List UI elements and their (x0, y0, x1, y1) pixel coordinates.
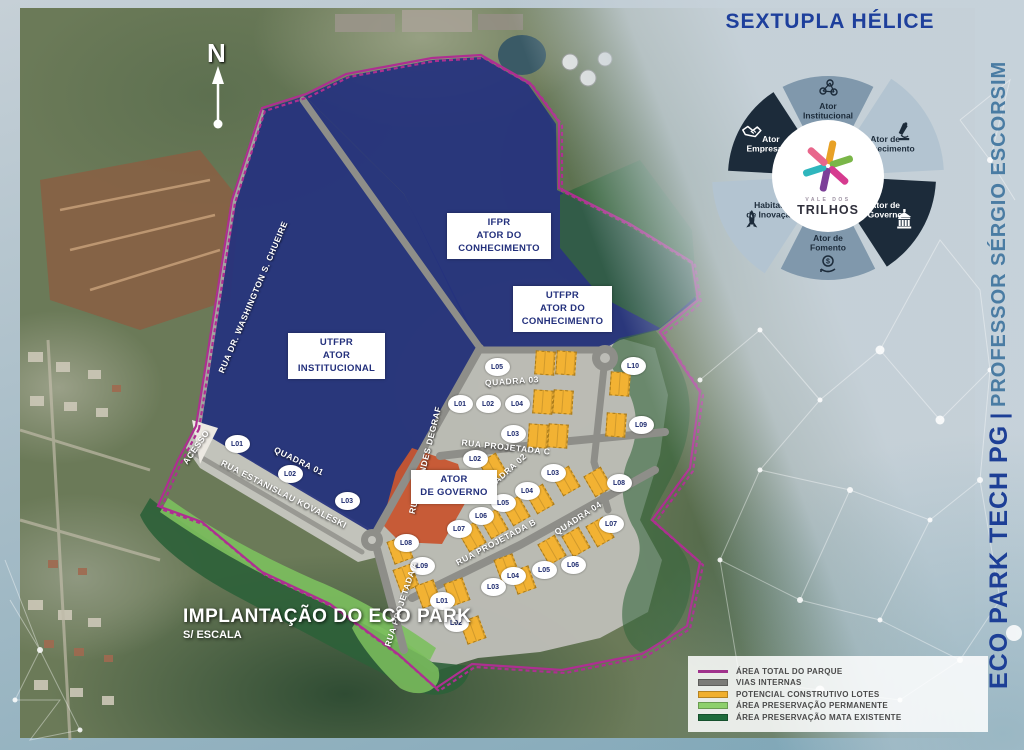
lot-badge: L03 (335, 492, 360, 510)
legend-item: ÁREA PRESERVAÇÃO MATA EXISTENTE (698, 713, 978, 722)
legend-item: POTENCIAL CONSTRUTIVO LOTES (698, 690, 978, 699)
legend-item: ÁREA PRESERVAÇÃO PERMANENTE (698, 701, 978, 710)
area-label-line: DE GOVERNO (417, 487, 491, 500)
magenta-line (698, 670, 728, 673)
area-label-line: UTFPR (519, 290, 606, 303)
lot-badge: L08 (394, 534, 419, 552)
legend-label: ÁREA TOTAL DO PARQUE (736, 667, 842, 676)
map-scale-note: S/ ESCALA (183, 629, 471, 641)
area-label-line: ATOR DO (519, 303, 606, 316)
lot-badge: L09 (629, 416, 654, 434)
helix-diagram: SEXTUPLA HÉLICE AtorInstitucionalAtor de… (690, 10, 970, 314)
vale-dos-trilhos-logo: VALE DOSTRILHOS (772, 120, 884, 232)
helix-title: SEXTUPLA HÉLICE (690, 10, 970, 34)
area-label-line: IFPR (453, 217, 545, 230)
construction-lot (555, 350, 577, 375)
lot-badge: L10 (621, 357, 646, 375)
slide-page: N L01L02L03L05L10L01L02L04L03L09L02L03L0… (0, 0, 1024, 750)
lot-badge: L02 (463, 450, 488, 468)
lot-badge: L04 (505, 395, 530, 413)
side-title-secondary: PROFESSOR SÉRGIO ESCORSIM (988, 61, 1011, 407)
construction-lot (534, 350, 556, 375)
area-label-line: INSTITUCIONAL (294, 363, 379, 376)
area-label-line: CONHECIMENTO (453, 243, 545, 256)
side-title-separator: | (987, 413, 1013, 419)
lot-badge: L03 (541, 464, 566, 482)
lot-badge: L07 (599, 515, 624, 533)
logo-line2: TRILHOS (797, 203, 859, 217)
side-title-main: ECO PARK TECH PG (985, 425, 1014, 689)
legend-label: VIAS INTERNAS (736, 678, 802, 687)
map-title-text: IMPLANTAÇÃO DO ECO PARK (183, 606, 471, 628)
area-label-utfpr-institucional: UTFPRATORINSTITUCIONAL (288, 333, 385, 379)
legend-item: VIAS INTERNAS (698, 678, 978, 687)
area-label-line: ATOR DO (453, 230, 545, 243)
light-green-bar (698, 702, 728, 709)
lot-badge: L03 (481, 578, 506, 596)
lot-badge: L01 (448, 395, 473, 413)
area-label-line: ATOR (417, 474, 491, 487)
lot-badge: L05 (485, 358, 510, 376)
legend-item: ÁREA TOTAL DO PARQUE (698, 667, 978, 676)
dark-green-bar (698, 714, 728, 721)
helix-svg: AtorInstitucionalAtor deConhecimentoAtor… (694, 38, 966, 314)
lot-badge: L03 (501, 425, 526, 443)
side-title: ECO PARK TECH PG | PROFESSOR SÉRGIO ESCO… (985, 0, 1014, 750)
area-label-line: CONHECIMENTO (519, 316, 606, 329)
lot-badge: L04 (515, 482, 540, 500)
area-label-ifpr: IFPRATOR DOCONHECIMENTO (447, 213, 551, 259)
yellow-bar (698, 691, 728, 698)
area-label-line: UTFPR (294, 337, 379, 350)
construction-lot (552, 389, 574, 414)
gray-bar (698, 679, 728, 686)
area-label-line: ATOR (294, 350, 379, 363)
construction-lot (532, 389, 554, 414)
lot-badge: L05 (532, 561, 557, 579)
lot-badge: L06 (469, 507, 494, 525)
construction-lot (547, 423, 569, 448)
area-label-ator-governo: ATORDE GOVERNO (411, 470, 497, 504)
lot-badge: L06 (561, 556, 586, 574)
construction-lot (609, 371, 631, 396)
legend-label: ÁREA PRESERVAÇÃO PERMANENTE (736, 701, 888, 710)
svg-text:$: $ (826, 259, 830, 266)
map-title: IMPLANTAÇÃO DO ECO PARK S/ ESCALA (183, 606, 471, 641)
lot-badge: L02 (278, 465, 303, 483)
lot-badge: L07 (447, 520, 472, 538)
map-legend: ÁREA TOTAL DO PARQUEVIAS INTERNASPOTENCI… (688, 656, 988, 732)
helix-segment-label: Ator deFomento (810, 233, 846, 253)
legend-label: POTENCIAL CONSTRUTIVO LOTES (736, 690, 880, 699)
lot-badge: L02 (476, 395, 501, 413)
area-label-utfpr-conhecimento: UTFPRATOR DOCONHECIMENTO (513, 286, 612, 332)
construction-lot (605, 412, 627, 437)
lot-badge: L01 (225, 435, 250, 453)
legend-label: ÁREA PRESERVAÇÃO MATA EXISTENTE (736, 713, 901, 722)
lot-badge: L08 (607, 474, 632, 492)
